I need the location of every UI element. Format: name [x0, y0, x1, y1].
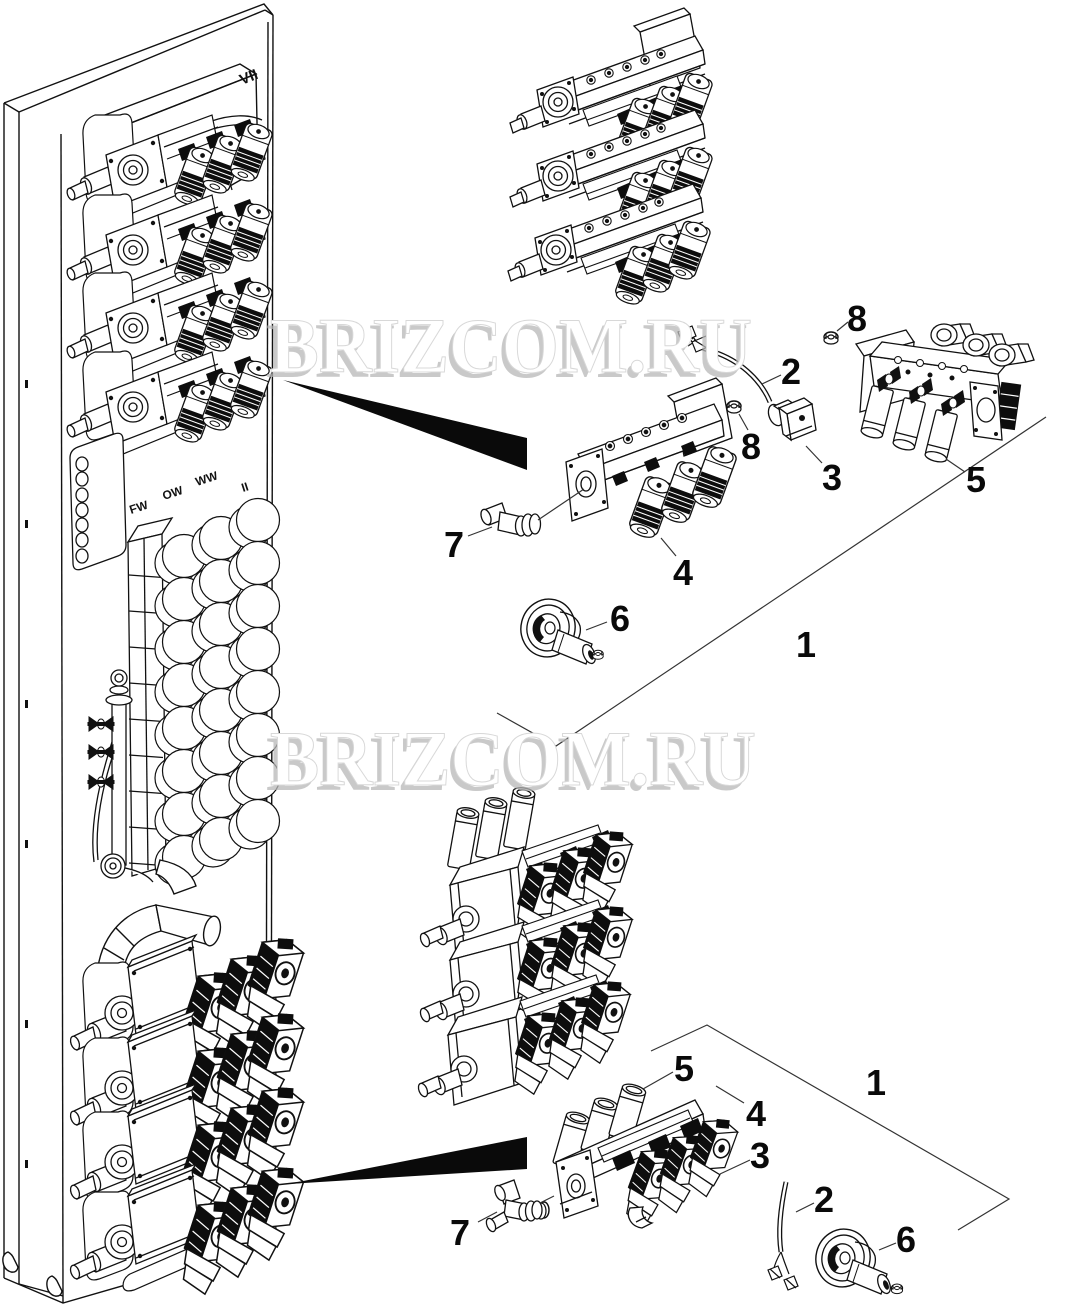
svg-text:8: 8	[741, 426, 761, 467]
svg-text:5: 5	[966, 459, 986, 500]
svg-text:3: 3	[750, 1135, 770, 1176]
svg-text:4: 4	[673, 552, 693, 593]
svg-text:BRIZCOM.RU: BRIZCOM.RU	[270, 715, 756, 802]
svg-text:7: 7	[444, 524, 464, 565]
svg-text:1: 1	[866, 1062, 886, 1103]
svg-text:2: 2	[814, 1179, 834, 1220]
svg-text:3: 3	[822, 457, 842, 498]
svg-text:6: 6	[896, 1219, 916, 1260]
svg-text:2: 2	[781, 351, 801, 392]
svg-text:8: 8	[847, 298, 867, 339]
svg-text:7: 7	[450, 1212, 470, 1253]
svg-text:BRIZCOM.RU: BRIZCOM.RU	[270, 302, 752, 389]
svg-text:1: 1	[796, 624, 816, 665]
svg-text:5: 5	[674, 1048, 694, 1089]
svg-text:4: 4	[746, 1093, 766, 1134]
svg-text:6: 6	[610, 598, 630, 639]
